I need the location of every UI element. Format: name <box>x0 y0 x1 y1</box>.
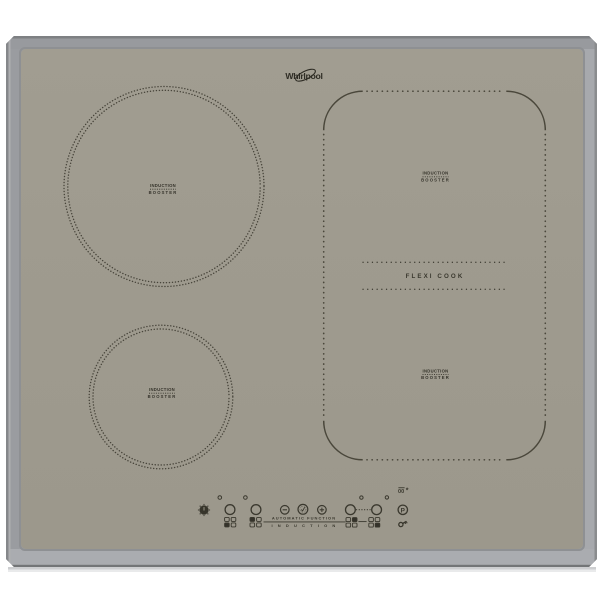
svg-text:FLEXI COOK: FLEXI COOK <box>406 273 465 280</box>
svg-text:INDUCTION: INDUCTION <box>149 387 175 392</box>
svg-text:BOOSTER: BOOSTER <box>149 190 178 195</box>
svg-text:INDUCTION: INDUCTION <box>423 171 449 176</box>
svg-text:BOOSTER: BOOSTER <box>421 177 450 182</box>
svg-text:Whirlpool: Whirlpool <box>285 71 322 81</box>
svg-text:INDUCTION: INDUCTION <box>423 368 449 373</box>
svg-text:BOOSTER: BOOSTER <box>148 394 177 399</box>
svg-text:AUTOMATIC FUNCTION: AUTOMATIC FUNCTION <box>272 516 336 521</box>
svg-text:INDUCTION: INDUCTION <box>271 523 340 528</box>
svg-text:00: 00 <box>398 489 404 495</box>
svg-text:*: * <box>406 487 409 494</box>
svg-text:INDUCTION: INDUCTION <box>150 183 176 188</box>
svg-text:P: P <box>401 507 406 514</box>
svg-text:BOOSTER: BOOSTER <box>421 375 450 380</box>
